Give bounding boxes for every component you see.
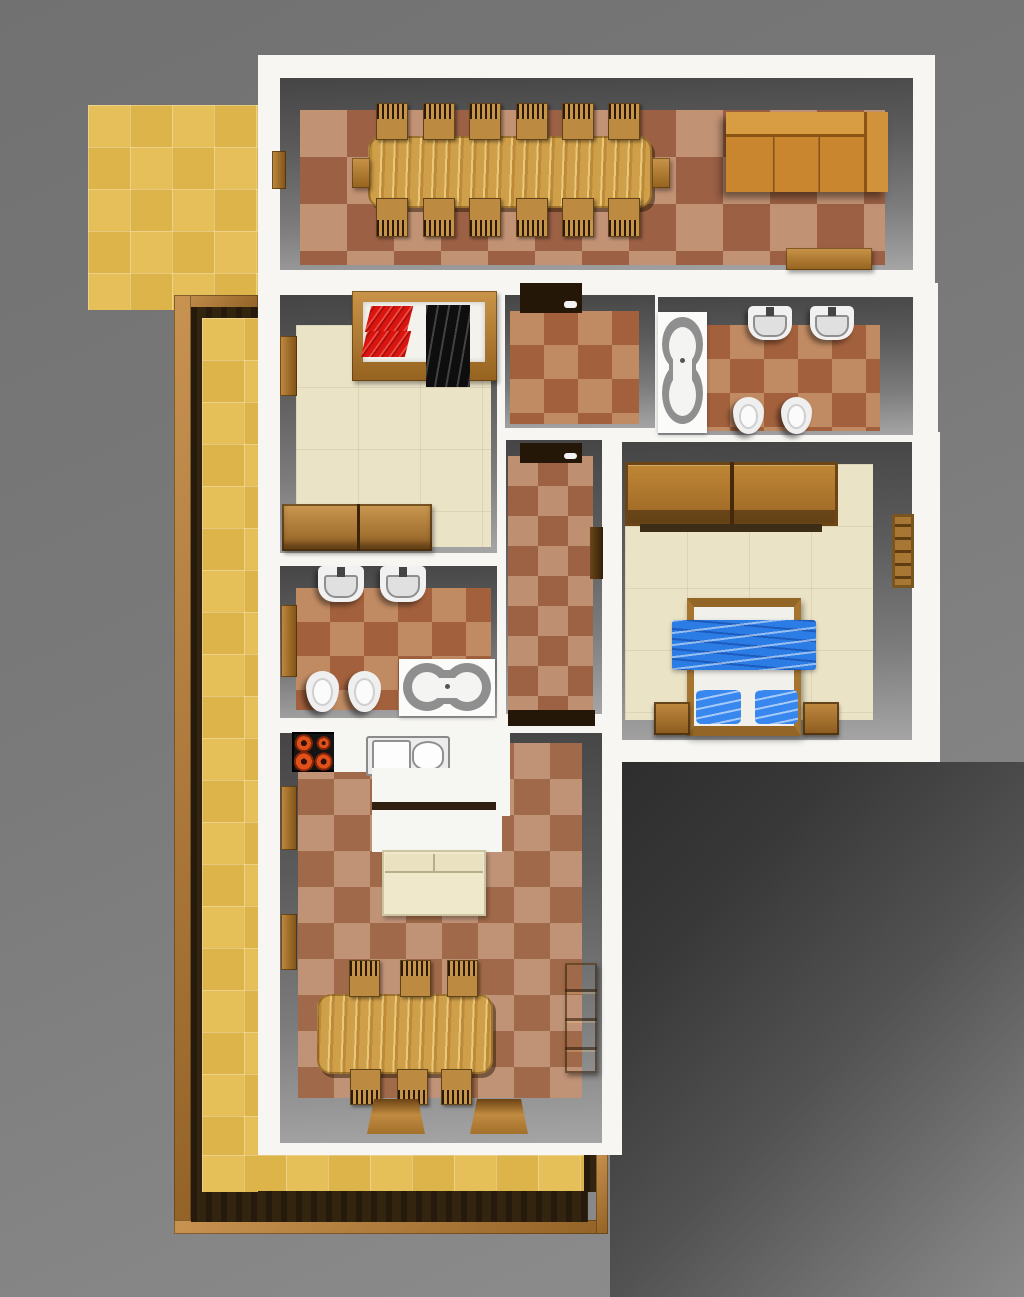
corridor-door-handle (564, 453, 577, 459)
wall-shelf-bedroom (280, 336, 297, 396)
kitchen-chair (349, 960, 380, 997)
balcony-bottom-floor (202, 1155, 584, 1191)
dining-table-end-right (652, 158, 670, 188)
black-blanket (426, 305, 470, 387)
nightstand (803, 702, 839, 735)
dining-chair (608, 198, 640, 237)
dining-chair (469, 103, 501, 140)
balcony-left-floor (202, 318, 258, 1192)
dining-chair (469, 198, 501, 237)
dining-chair (562, 198, 594, 237)
console-bench (786, 248, 872, 270)
entry-door-handle (564, 301, 577, 308)
kitchen-door-upper (281, 786, 297, 850)
bathtub-left-drain (445, 684, 450, 689)
dining-chair (376, 103, 408, 140)
floor-corridor (508, 456, 593, 710)
bathroom-door-left (281, 605, 297, 677)
corridor-door (520, 443, 582, 463)
dining-chair (516, 103, 548, 140)
terrace-upper-floor (88, 105, 258, 310)
kitchen-door-lower (281, 914, 297, 970)
balcony-shadow-right (584, 1155, 596, 1192)
pillow (696, 690, 741, 724)
dining-chair (608, 103, 640, 140)
kitchen-bench (382, 850, 486, 916)
wall-shelf-living (272, 151, 286, 189)
balcony-shadow-left (191, 307, 202, 1206)
kitchen-chair (400, 960, 431, 997)
sink (380, 566, 426, 602)
window-right (892, 514, 914, 588)
dining-chair (423, 103, 455, 140)
dining-chair (516, 198, 548, 237)
kitchen-chair (441, 1069, 472, 1105)
balcony-shadow-bottom (191, 1190, 588, 1222)
nightstand (654, 702, 690, 735)
kitchen-table (317, 994, 493, 1074)
stove (292, 732, 336, 772)
sink (810, 306, 854, 340)
kitchen-threshold (508, 710, 595, 726)
wardrobe-shelf-strip (640, 524, 822, 532)
bench-seat (367, 1099, 425, 1134)
balcony-frame-left-wood (174, 295, 191, 1234)
kitchen-chair (447, 960, 478, 997)
balcony-frame-right-wood (596, 1150, 608, 1234)
ground-shadow (610, 762, 1024, 1297)
pillow (755, 690, 798, 724)
dining-chair (562, 103, 594, 140)
sofa (726, 112, 888, 192)
floor-plan-render (0, 0, 1024, 1297)
dining-chair (376, 198, 408, 237)
island-counter (372, 810, 502, 852)
entry-door (520, 283, 582, 313)
dining-chair (423, 198, 455, 237)
blue-blanket (672, 620, 816, 670)
wardrobe-left (282, 504, 432, 551)
bathtub-top-basin-mid (673, 350, 692, 396)
floor-entry-hall (510, 311, 639, 424)
sink (318, 566, 364, 602)
tall-cabinet (565, 963, 597, 1073)
bathtub-top-drain (680, 358, 685, 363)
balcony-frame-bottom-wood (174, 1220, 608, 1234)
sink (748, 306, 792, 340)
corridor-side-door (590, 527, 603, 579)
bench-seat (470, 1099, 528, 1134)
red-blanket-b (361, 331, 411, 357)
dining-table-end-left (352, 158, 370, 188)
wardrobe-right (625, 462, 838, 526)
red-blanket-a (365, 306, 413, 332)
